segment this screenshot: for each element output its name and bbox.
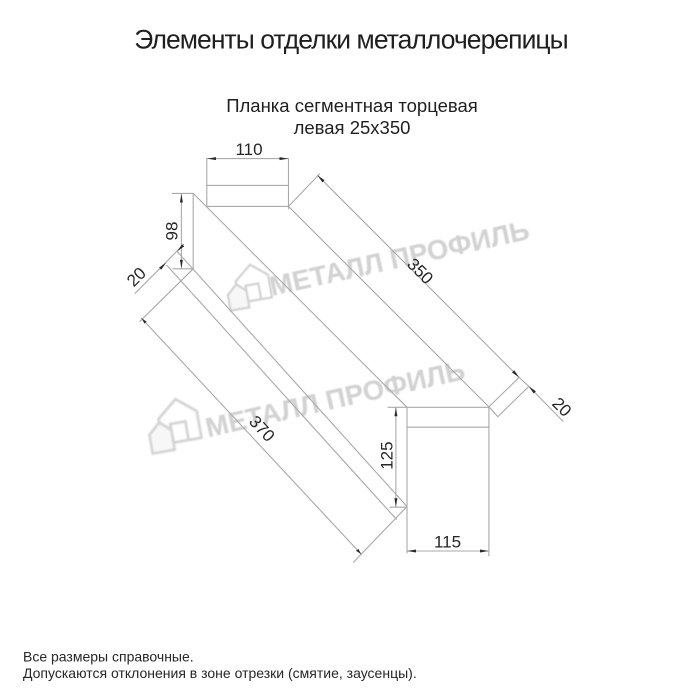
svg-text:левая 25х350: левая 25х350	[294, 117, 411, 138]
svg-text:Планка сегментная торцевая: Планка сегментная торцевая	[226, 95, 478, 116]
svg-text:115: 115	[434, 533, 461, 552]
svg-text:Допускаются отклонения в зоне: Допускаются отклонения в зоне отрезки (с…	[23, 665, 417, 681]
svg-text:Все размеры справочные.: Все размеры справочные.	[23, 649, 194, 665]
svg-text:110: 110	[235, 140, 262, 159]
svg-text:125: 125	[377, 441, 396, 469]
svg-text:Элементы отделки металлочерепи: Элементы отделки металлочерепицы	[134, 24, 568, 54]
svg-text:98: 98	[163, 222, 182, 241]
